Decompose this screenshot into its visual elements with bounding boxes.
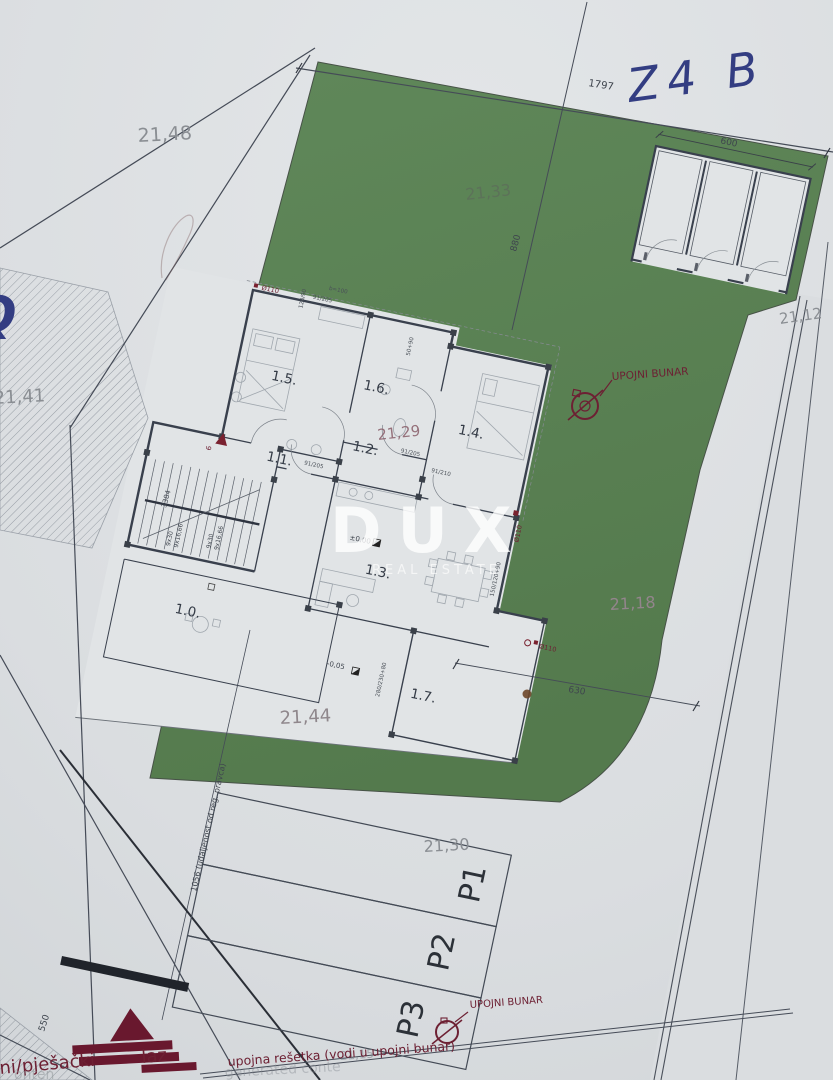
elevation-21-18: 21,18 — [609, 593, 656, 614]
margin-handwriting-glyph: Q — [0, 286, 17, 344]
elevation-21-30: 21,30 — [423, 835, 470, 856]
dux-watermark: DUX REAL ESTATE — [330, 494, 528, 578]
faint-watermark-2: onten — [14, 1067, 54, 1080]
access-label-right: laz — [141, 1045, 168, 1068]
watermark-brand: DUX — [330, 494, 528, 567]
elevation-21-44: 21,44 — [279, 705, 332, 729]
site-plan-photo: 9x30 9x16,66 9x30 9x16,66 — [0, 0, 833, 1080]
punch-hole-dot — [523, 690, 532, 699]
elevation-21-41: 21,41 — [0, 385, 46, 409]
watermark-subtitle: REAL ESTATE — [372, 563, 501, 578]
site-plan-drawing: 9x30 9x16,66 9x30 9x16,66 — [0, 0, 833, 1080]
elevation-21-48: 21,48 — [137, 122, 192, 147]
